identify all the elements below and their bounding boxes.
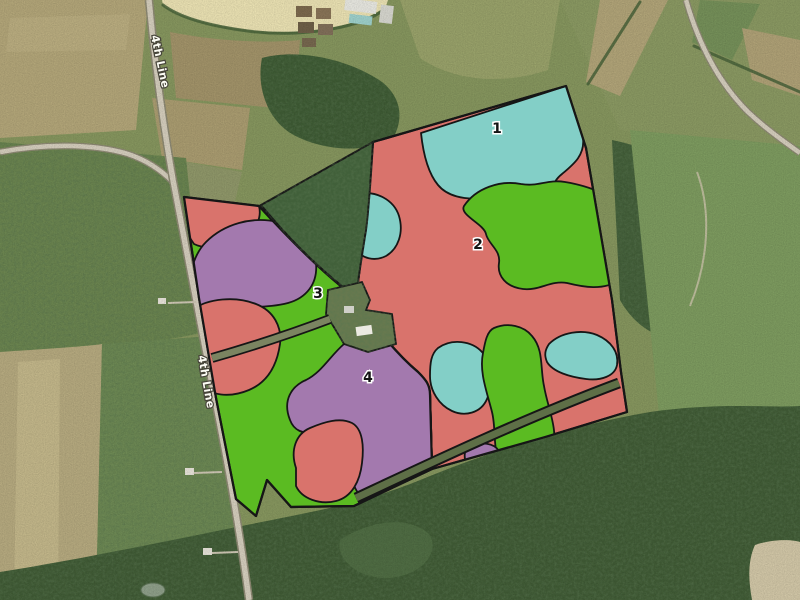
zone-label-2[interactable]: 2 xyxy=(473,237,483,253)
zone-label-4[interactable]: 4 xyxy=(363,370,373,386)
zone-label-3[interactable]: 3 xyxy=(313,286,323,302)
zone-label-1[interactable]: 1 xyxy=(492,121,502,137)
shed-roof xyxy=(344,306,354,313)
map-canvas[interactable]: 1 2 3 4 4th Line 4th Line xyxy=(0,0,800,600)
zone-blob-red-bottom[interactable] xyxy=(294,420,363,502)
